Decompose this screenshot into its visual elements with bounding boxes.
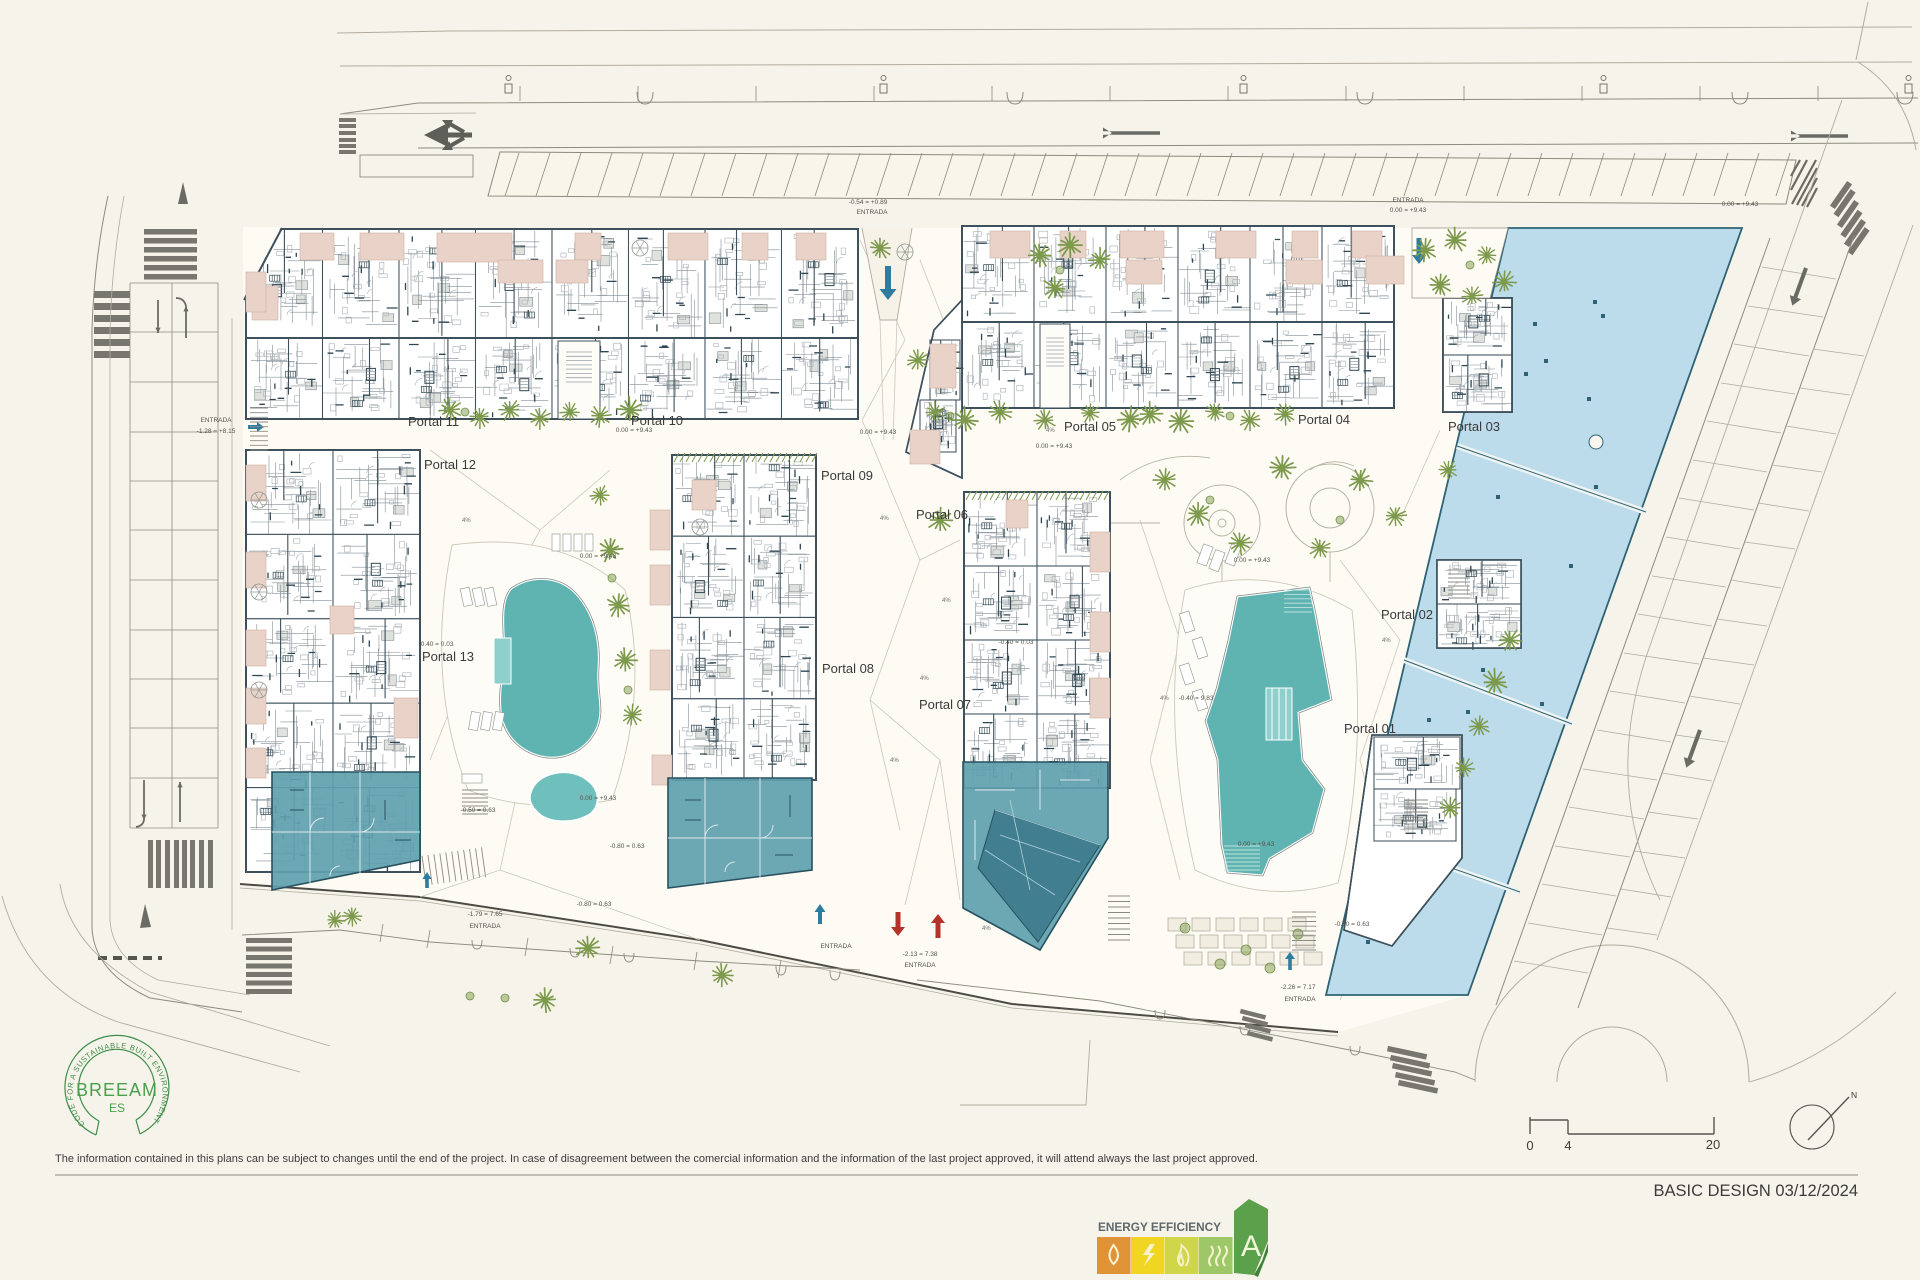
svg-text:-0.54 = +0.89: -0.54 = +0.89: [849, 199, 888, 206]
svg-text:-0.40 = 9.83: -0.40 = 9.83: [1179, 695, 1214, 702]
svg-text:Portal 07: Portal 07: [919, 697, 971, 712]
svg-text:Portal 02: Portal 02: [1381, 607, 1433, 622]
svg-text:Portal 06: Portal 06: [916, 507, 968, 522]
svg-text:BASIC DESIGN 03/12/2024: BASIC DESIGN 03/12/2024: [1653, 1182, 1858, 1200]
svg-text:0: 0: [1526, 1138, 1533, 1153]
svg-text:BREEAM: BREEAM: [76, 1080, 158, 1100]
svg-text:-2.26 = 7.17: -2.26 = 7.17: [1281, 984, 1316, 991]
svg-text:4%: 4%: [462, 518, 471, 524]
svg-text:-0.80 = 0.63: -0.80 = 0.63: [610, 843, 645, 850]
svg-text:N: N: [1851, 1090, 1857, 1100]
svg-text:4%: 4%: [890, 758, 899, 764]
svg-text:ENTRADA: ENTRADA: [820, 943, 852, 950]
svg-text:0.00 = +9.43: 0.00 = +9.43: [616, 427, 653, 434]
svg-text:0.00 = +9.43: 0.00 = +9.43: [1036, 443, 1073, 450]
svg-text:4: 4: [1564, 1138, 1571, 1153]
svg-text:-0.80 = 0.63: -0.80 = 0.63: [1335, 921, 1370, 928]
svg-text:4%: 4%: [942, 598, 951, 604]
svg-text:ES: ES: [109, 1101, 125, 1115]
svg-text:The information contained in t: The information contained in this plans …: [55, 1153, 1258, 1165]
svg-text:0.00 = +9.43: 0.00 = +9.43: [580, 553, 617, 560]
svg-text:-2.13 = 7.38: -2.13 = 7.38: [903, 951, 938, 958]
svg-text:Portal 11: Portal 11: [408, 414, 459, 429]
svg-text:-0.50 = 0.63: -0.50 = 0.63: [461, 807, 496, 814]
svg-text:0.00 = +9.43: 0.00 = +9.43: [1234, 557, 1271, 564]
svg-text:ENTRADA: ENTRADA: [469, 923, 501, 930]
svg-text:4%: 4%: [1160, 696, 1169, 702]
svg-text:ENTRADA: ENTRADA: [1392, 197, 1424, 204]
svg-text:-0.40 = 0.03: -0.40 = 0.03: [419, 641, 454, 648]
svg-text:ENTRADA: ENTRADA: [856, 209, 888, 216]
svg-text:A: A: [1241, 1230, 1261, 1263]
svg-text:-0.80 = 0.63: -0.80 = 0.63: [577, 901, 612, 908]
svg-text:Portal 12: Portal 12: [424, 457, 476, 472]
svg-text:Portal 13: Portal 13: [422, 649, 474, 664]
svg-text:0.00 = +9.43: 0.00 = +9.43: [860, 429, 897, 436]
svg-text:0.00 = +9.43: 0.00 = +9.43: [1722, 201, 1759, 208]
svg-text:Portal 09: Portal 09: [821, 468, 873, 483]
svg-text:Portal 10: Portal 10: [631, 413, 683, 428]
svg-text:-1.28 = +8.15: -1.28 = +8.15: [197, 428, 236, 435]
svg-text:4%: 4%: [982, 926, 991, 932]
svg-text:20: 20: [1706, 1137, 1720, 1152]
svg-text:0.00 = +9.43: 0.00 = +9.43: [580, 795, 617, 802]
svg-text:Portal 08: Portal 08: [822, 661, 874, 676]
svg-text:Portal 01: Portal 01: [1344, 721, 1396, 736]
svg-text:ENERGY EFFICIENCY: ENERGY EFFICIENCY: [1098, 1220, 1221, 1234]
svg-text:Portal 03: Portal 03: [1448, 419, 1500, 434]
svg-text:-0.40 = 0.03: -0.40 = 0.03: [999, 639, 1034, 646]
svg-text:4%: 4%: [920, 676, 929, 682]
svg-text:Portal 05: Portal 05: [1064, 419, 1116, 434]
svg-text:4%: 4%: [1382, 638, 1391, 644]
svg-text:0.00 = +9.43: 0.00 = +9.43: [1390, 207, 1427, 214]
svg-text:ENTRADA: ENTRADA: [1284, 996, 1316, 1003]
svg-text:ENTRADA: ENTRADA: [200, 417, 232, 424]
svg-text:4%: 4%: [880, 516, 889, 522]
svg-text:-1.79 = 7.65: -1.79 = 7.65: [468, 911, 503, 918]
svg-text:ENTRADA: ENTRADA: [904, 962, 936, 969]
svg-text:0.00 = +9.43: 0.00 = +9.43: [1238, 841, 1275, 848]
svg-text:4%: 4%: [1046, 428, 1055, 434]
svg-text:Portal 04: Portal 04: [1298, 412, 1350, 427]
